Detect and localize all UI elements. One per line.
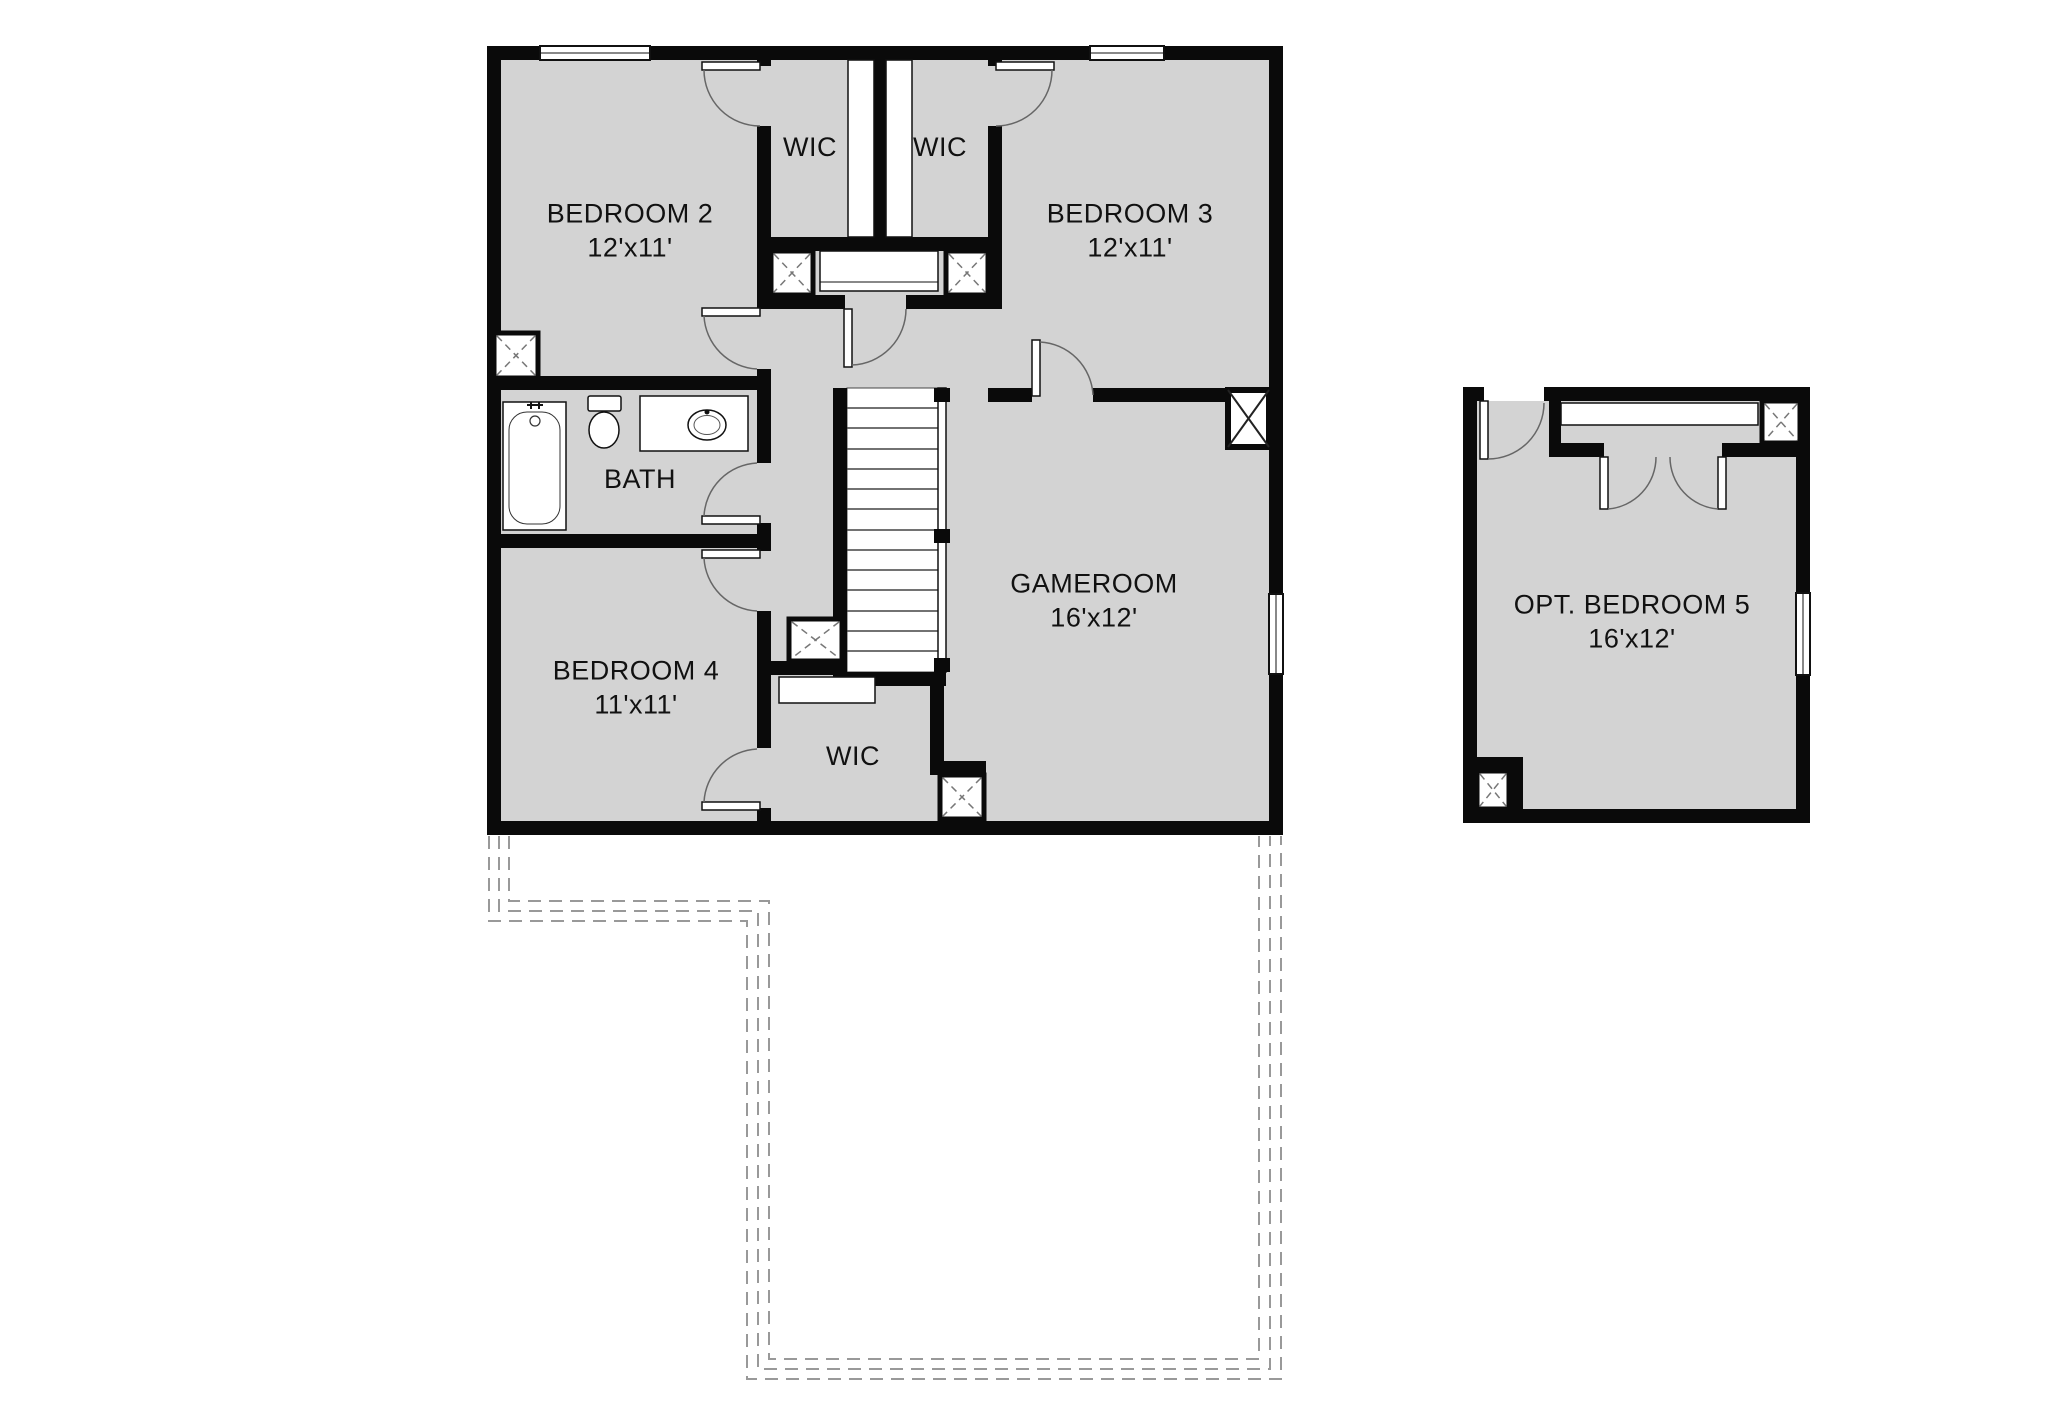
room-label-wic-left: WIC [783,131,837,165]
room-label-bedroom-4: BEDROOM 411'x11' [553,654,720,722]
window-gameroom [1269,594,1283,674]
linen-closet [820,251,938,291]
room-label-opt-bedroom-5: OPT. BEDROOM 516'x12' [1514,588,1751,656]
chase-marker-left-wall [494,333,538,378]
dashed-footprint-outline [489,836,1281,1379]
window-bedroom2 [540,46,650,60]
room-label-bedroom-3: BEDROOM 312'x11' [1047,197,1214,265]
vanity-sink [640,396,748,451]
chase-marker-corridor [789,619,842,661]
room-label-bedroom-2: BEDROOM 212'x11' [547,197,714,265]
room-label-wic-bedroom4: WIC [826,740,880,774]
chase-marker-opt-bedroom5-bottom [1477,771,1509,809]
opt-bedroom5-closet-shelf [1561,403,1758,425]
floor-plan-drawing [0,0,2048,1412]
room-label-wic-right: WIC [913,131,967,165]
chase-marker-linen-right [946,251,988,295]
floor-plan: BEDROOM 212'x11' WIC WIC BEDROOM 312'x11… [0,0,2048,1412]
chase-marker-linen-left [771,251,813,295]
fireplace-chase-gameroom [1228,390,1269,447]
staircase [847,388,950,672]
room-label-bath: BATH [604,463,676,497]
chase-marker-opt-bedroom5-top [1762,401,1800,443]
window-bedroom3 [1090,46,1164,60]
toilet [588,396,621,448]
bathtub [503,402,566,530]
window-opt-bedroom5 [1796,593,1810,675]
room-label-gameroom: GAMEROOM16'x12' [1010,567,1178,635]
chase-marker-wic-bedroom4 [940,775,984,819]
